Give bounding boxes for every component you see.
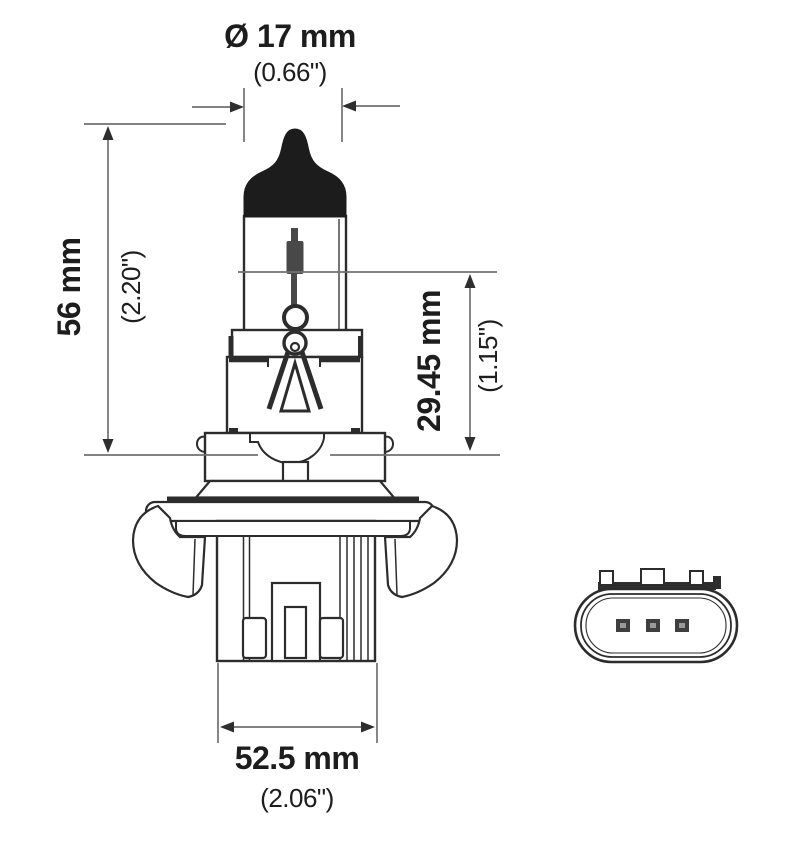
flange-block xyxy=(197,433,393,481)
length-imperial-label: (2.20") xyxy=(116,250,146,324)
collar-right-accent xyxy=(358,336,363,357)
flange-skirt xyxy=(196,481,394,498)
connector-pin-core xyxy=(620,623,626,628)
technical-drawing-canvas: Ø 17 mm (0.66") 56 mm (2.20") 29.45 mm (… xyxy=(0,0,800,843)
left-terminal xyxy=(243,618,266,658)
bulb-drawing xyxy=(133,129,457,661)
connector-pin-core xyxy=(650,623,656,628)
center-terminal xyxy=(285,607,306,658)
dim-arrowhead xyxy=(465,437,476,451)
disc-tray xyxy=(176,521,410,536)
connector-tab-right xyxy=(690,571,703,585)
dim-arrowhead xyxy=(465,274,476,288)
diameter-metric-label: Ø 17 mm xyxy=(224,18,356,54)
bulb-diagram-svg: Ø 17 mm (0.66") 56 mm (2.20") 29.45 mm (… xyxy=(0,0,800,843)
dim-arrowhead xyxy=(220,722,234,733)
base-to-filament-imperial-label: (1.15") xyxy=(473,319,503,393)
base-width-imperial-label: (2.06") xyxy=(260,783,334,813)
connector-tab-left xyxy=(600,571,613,585)
filament-lead-wire xyxy=(291,273,297,308)
diameter-imperial-label: (0.66") xyxy=(253,57,327,87)
connector-tab-center xyxy=(641,569,664,585)
connector-pin-core xyxy=(679,623,685,628)
dim-arrowhead xyxy=(361,722,375,733)
filament-support-ring xyxy=(284,306,307,329)
seal-disc xyxy=(146,502,434,521)
base-to-filament-metric-label: 29.45 mm xyxy=(411,290,447,432)
connector-face-view xyxy=(575,569,737,662)
length-metric-label: 56 mm xyxy=(51,238,87,337)
filament-tip xyxy=(291,228,298,242)
black-glass-tip xyxy=(244,129,346,217)
dim-arrowhead xyxy=(103,126,114,140)
dim-arrowhead xyxy=(230,102,244,113)
dim-base-width xyxy=(218,663,377,743)
base-width-metric-label: 52.5 mm xyxy=(235,740,360,776)
connector-pins xyxy=(616,619,689,632)
seal-gasket-band xyxy=(167,497,419,503)
right-terminal xyxy=(320,618,343,658)
filament-shield xyxy=(287,241,304,274)
dim-arrowhead xyxy=(103,439,114,453)
dim-arrowhead xyxy=(342,101,356,112)
flange-index-tab xyxy=(283,462,308,481)
collar-left-accent xyxy=(229,336,234,357)
connector-tab-end xyxy=(713,576,721,589)
pinch-hole xyxy=(291,343,299,351)
